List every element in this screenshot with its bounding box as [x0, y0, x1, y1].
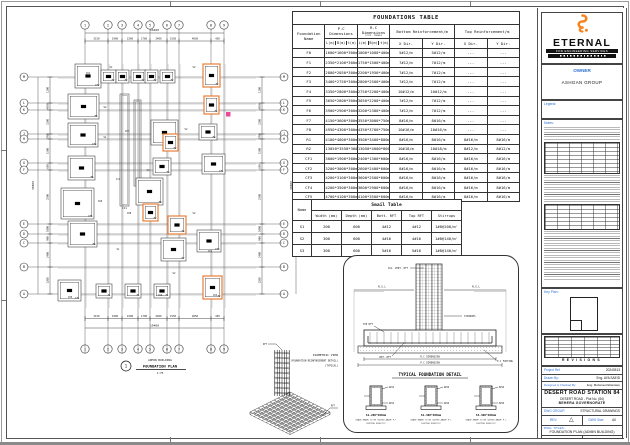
svg-text:2400: 2400	[155, 37, 162, 41]
owner-name: ASHGAN GROUP	[542, 80, 622, 85]
foundations-table-row: F12350*2100*300mm1750*1500*400mm7#12/m7#…	[293, 58, 520, 68]
foundations-table-row: CF34200*3100*300mm3600*2500*600mm8#16/m8…	[293, 173, 520, 183]
svg-text:S3: S3	[147, 169, 150, 172]
svg-text:A: A	[283, 292, 285, 296]
svg-text:1: 1	[84, 23, 86, 27]
svg-text:5#16: 5#16	[499, 386, 505, 389]
svg-text:RFT: RFT	[263, 343, 268, 346]
svg-text:S1: S1	[117, 248, 120, 251]
drawn-by-row: Drawn By: Eng. AYA SAEID	[542, 374, 622, 382]
fold-tick	[1, 300, 6, 301]
svg-text:TYPICAL FOUNDATION DETAIL: TYPICAL FOUNDATION DETAIL	[398, 372, 462, 377]
drawing-sheet: 112233445566778899MMLLKKJJHHGGFFEEDDCCBB…	[0, 0, 630, 445]
svg-text:B: B	[283, 265, 285, 269]
svg-text:2700: 2700	[46, 133, 50, 140]
svg-text:C03: C03	[213, 294, 218, 297]
svg-text:K: K	[283, 108, 285, 112]
drawn-by-value: Eng. AYA SAEID	[597, 375, 620, 382]
svg-text:5: 5	[149, 23, 151, 27]
svg-text:CF3: CF3	[215, 248, 220, 251]
col-pc-dimensions: P.C Dimensions	[325, 25, 357, 39]
smail-col-stirrups: Stirrups	[432, 211, 462, 221]
svg-text:H: H	[23, 137, 25, 141]
svg-text:4050: 4050	[192, 314, 199, 318]
svg-text:COL. VERT. RFT: COL. VERT. RFT	[388, 267, 409, 270]
notes-text	[544, 175, 620, 203]
rc-subcols: L(m)B(m)t(m)	[357, 38, 389, 48]
svg-text:450: 450	[215, 314, 220, 318]
svg-text:TOP RFT: TOP RFT	[363, 323, 374, 326]
svg-text:C11: C11	[116, 178, 121, 181]
title-block-panel: ETERNAL FOR ENGINEERING SERVICES OWNER A…	[537, 8, 627, 438]
svg-text:8: 8	[210, 23, 212, 27]
svg-text:FOOTING DIRECTLY: FOOTING DIRECTLY	[476, 423, 496, 425]
smail-col-top: Top RFT	[402, 211, 432, 221]
key-plan-label: Key Plan:	[542, 289, 622, 295]
dwg-size-value: A0	[612, 418, 616, 422]
svg-text:2: 2	[107, 23, 109, 27]
svg-text:30800: 30800	[31, 181, 35, 190]
foundations-table-row: F43350*2800*300mm2750*2200*400mm10#12/m1…	[293, 86, 520, 96]
svg-text:ISOMETRIC VIEW: ISOMETRIC VIEW	[313, 353, 338, 357]
svg-text:1200: 1200	[46, 87, 50, 94]
svg-text:BOT. RFT: BOT. RFT	[379, 356, 391, 359]
col-rc-dimensions: R.C Dimensions(col. base)	[357, 25, 389, 39]
svg-text:2700: 2700	[258, 133, 262, 140]
eternal-logo-icon	[575, 14, 590, 33]
svg-text:3: 3	[121, 23, 123, 27]
foundations-table-row: CF44200*3500*300mm3600*2900*600mm8#16/m8…	[293, 182, 520, 192]
project-ref-value: 20240513	[606, 367, 620, 374]
svg-text:2500: 2500	[258, 194, 262, 201]
svg-text:FOOTING DIRECTLY: FOOTING DIRECTLY	[421, 423, 441, 425]
svg-text:1500: 1500	[258, 148, 262, 155]
svg-text:R.C DIMENSION: R.C DIMENSION	[420, 355, 440, 359]
foundation-plan: 112233445566778899MMLLKKJJHHGGFFEEDDCCBB…	[8, 8, 340, 437]
svg-text:A: A	[23, 292, 25, 296]
revisions-box: REVISIONS	[541, 334, 623, 366]
foundations-table-row: F01600*1600*300mm1000*1000*400mm5#12/m5#…	[293, 48, 520, 58]
col-bottom-reinforcement: Bottom Reinforcement/m	[390, 25, 455, 39]
svg-text:L: L	[23, 101, 25, 105]
notes-text	[544, 127, 620, 141]
fold-tick	[320, 1, 321, 6]
foundations-table-row: F33400*2750*300mm2800*2500*400mm7#12/m7#…	[293, 77, 520, 87]
svg-text:2500: 2500	[46, 194, 50, 201]
svg-text:5#16: 5#16	[499, 402, 505, 405]
designed-by-value: Eng. Mohamed Eltantawy	[587, 382, 620, 389]
svg-text:ADMIN BUILDING: ADMIN BUILDING	[148, 358, 172, 362]
project-title: DESERT ROAD STATION 84	[542, 390, 622, 397]
smail-table: Name Smail Table Width (mm) Depth (mm) B…	[292, 199, 462, 257]
svg-text:M: M	[283, 75, 285, 79]
svg-text:CF1: CF1	[219, 170, 224, 173]
foundations-table-title: FOUNDATIONS TABLE	[293, 12, 520, 25]
svg-text:2400: 2400	[155, 314, 162, 318]
revisions-table	[544, 336, 620, 358]
svg-text:C: C	[283, 241, 285, 245]
svg-text:G: G	[283, 161, 285, 165]
foundations-table-row: R213050*3550*300mm13050*4000*800mm10#18/…	[293, 144, 520, 154]
foundations-table-row: R14100*4000*300mm3500*3400*800mm8#16/m8#…	[293, 134, 520, 144]
svg-text:GRADE BEAMS TO BE CASTED ABOVE: GRADE BEAMS TO BE CASTED ABOVE P.C	[466, 419, 508, 422]
svg-text:C08: C08	[127, 212, 132, 215]
svg-text:900: 900	[258, 236, 262, 241]
dwg-group-row: DWG GROUP: STRUCTURAL DRAWINGS	[542, 407, 622, 415]
svg-text:P.C DIMENSION: P.C DIMENSION	[420, 361, 440, 365]
svg-text:GRADE BEAMS TO BE CASTED ABOVE: GRADE BEAMS TO BE CASTED ABOVE P.C	[356, 419, 398, 422]
svg-text:S1-200*600mm: S1-200*600mm	[366, 413, 387, 417]
svg-text:C: C	[23, 241, 25, 245]
col-top-reinforcement: Top Reinforcement/m	[455, 25, 520, 39]
svg-text:S3-300*600mm: S3-300*600mm	[476, 413, 497, 417]
svg-text:S2: S2	[104, 106, 107, 109]
svg-text:N.G.L: N.G.L	[472, 285, 480, 289]
svg-text:CF2: CF2	[95, 84, 100, 87]
svg-text:3150: 3150	[93, 314, 100, 318]
svg-text:F: F	[23, 168, 25, 172]
svg-text:1200: 1200	[46, 277, 50, 284]
title-block: Project Ref 20240513 Drawn By: Eng. AYA …	[541, 366, 623, 439]
svg-text:S2: S2	[193, 212, 196, 215]
project-name-block: DESERT ROAD STATION 84 DESERT ROAD - Plo…	[542, 389, 622, 408]
svg-text:3200: 3200	[46, 119, 50, 126]
smail-col-depth: Depth (mm)	[342, 211, 372, 221]
project-ref-row: Project Ref 20240513	[542, 367, 622, 374]
svg-text:RFT: RFT	[331, 405, 336, 408]
company-tagline-arabic	[548, 54, 616, 58]
pc-subcols: L(m)B(m)t(m)	[325, 38, 357, 48]
svg-text:S2: S2	[185, 128, 188, 131]
owner-box: OWNER ASHGAN GROUP	[541, 64, 623, 100]
dwg-group-value: STRUCTURAL DRAWINGS	[580, 408, 620, 415]
svg-text:K: K	[23, 108, 25, 112]
svg-text:4#12: 4#12	[389, 402, 395, 405]
svg-text:STIRRUPS: STIRRUPS	[464, 315, 476, 318]
svg-text:3150: 3150	[93, 37, 100, 41]
svg-text:9: 9	[223, 23, 225, 27]
notes-text	[544, 231, 620, 281]
company-tagline: FOR ENGINEERING SERVICES	[546, 49, 618, 54]
scale-value: AS SHOWN	[601, 438, 618, 439]
drawing-no-value: ST-00	[570, 438, 579, 439]
revision-triangle-icon: △	[569, 417, 574, 423]
notes-table-1	[544, 142, 620, 174]
svg-text:650: 650	[258, 164, 262, 169]
svg-text:H: H	[283, 137, 285, 141]
owner-label: OWNER	[542, 68, 622, 73]
foundations-table: FOUNDATIONS TABLE Foundation Name P.C Di…	[292, 11, 520, 202]
col-bottom-x: X Dir.	[390, 38, 422, 48]
svg-text:E: E	[283, 222, 285, 226]
svg-text:1000: 1000	[258, 226, 262, 233]
svg-text:B: B	[23, 265, 25, 269]
typical-foundation-detail-box: N.G.LN.G.LCOL. VERT. RFTSTIRRUPSTOP RFTB…	[343, 255, 519, 433]
smail-col-name: Name	[293, 200, 312, 221]
notes-label: Notes:	[542, 120, 622, 126]
svg-text:P.C FOOTING: P.C FOOTING	[497, 360, 513, 363]
svg-text:1900: 1900	[112, 314, 119, 318]
svg-text:CF5: CF5	[88, 215, 93, 218]
foundations-table-row: F84950*4300*300mm4350*3700*750mm10#16/m1…	[293, 125, 520, 135]
svg-text:6: 6	[166, 23, 168, 27]
svg-text:E: E	[23, 222, 25, 226]
revisions-footer: REVISIONS	[542, 358, 622, 363]
designed-by-row: Designed & Checked By: Eng. Mohamed Elta…	[542, 381, 622, 389]
smail-table-row: S12006004#124#121#8@200/m'	[293, 221, 462, 233]
notes-table-2	[544, 204, 620, 230]
svg-text:C06: C06	[98, 200, 103, 203]
svg-text:4: 4	[137, 23, 139, 27]
svg-text:19400: 19400	[150, 323, 159, 327]
legend-box: Legend:	[541, 100, 623, 119]
svg-text:N.G.L: N.G.L	[378, 285, 386, 289]
svg-text:1:75: 1:75	[157, 371, 164, 375]
svg-text:C07: C07	[125, 130, 130, 133]
svg-text:1500: 1500	[46, 148, 50, 155]
dwg-title-row: DWG. TITLES: FOUNDATION PLAN (ADMIN BUIL…	[542, 425, 622, 435]
svg-text:1700: 1700	[141, 37, 148, 41]
foundations-table-row: CF13000*1900*300mm2400*1300*600mm8#16/m8…	[293, 154, 520, 164]
col-foundation-name: Foundation Name	[293, 25, 325, 49]
svg-text:C01: C01	[86, 72, 91, 75]
svg-text:4050: 4050	[192, 37, 199, 41]
svg-text:2200: 2200	[127, 37, 134, 41]
svg-text:F: F	[283, 168, 285, 172]
svg-text:4850: 4850	[258, 103, 262, 110]
typical-foundation-detail: N.G.LN.G.LCOL. VERT. RFTSTIRRUPSTOP RFTB…	[344, 256, 516, 430]
svg-text:1200: 1200	[258, 87, 262, 94]
svg-text:4#12: 4#12	[389, 386, 395, 389]
svg-text:1900: 1900	[112, 37, 119, 41]
svg-text:1200: 1200	[258, 277, 262, 284]
smail-table-title: Smail Table	[312, 200, 462, 211]
legend-label: Legend:	[542, 101, 622, 107]
svg-text:(TYPICAL): (TYPICAL)	[325, 364, 338, 367]
svg-text:4850: 4850	[46, 103, 50, 110]
svg-text:M: M	[23, 75, 25, 79]
svg-text:1700: 1700	[141, 314, 148, 318]
svg-text:C04: C04	[158, 294, 163, 297]
svg-text:1000: 1000	[46, 226, 50, 233]
svg-text:(FOUNDATION REINFORCEMENT DETA: (FOUNDATION REINFORCEMENT DETAIL)	[291, 359, 339, 362]
svg-text:D: D	[283, 232, 285, 236]
svg-text:C09: C09	[208, 250, 213, 253]
svg-text:2400: 2400	[258, 252, 262, 259]
fold-tick	[470, 1, 471, 6]
smail-col-bott: Bott. RFT	[372, 211, 402, 221]
svg-text:450: 450	[215, 37, 220, 41]
svg-text:D: D	[23, 232, 25, 236]
drawing-no-row: DRAWING NO: ST-00 SCALE: AS SHOWN	[542, 435, 622, 439]
company-logo-box: ETERNAL FOR ENGINEERING SERVICES	[541, 12, 623, 64]
foundations-table-row: F74150*3600*300mm3550*3000*750mm8#16/m8#…	[293, 115, 520, 125]
smail-col-width: Width (mm)	[312, 211, 342, 221]
svg-text:CF1: CF1	[75, 297, 80, 300]
foundations-table-row: F63900*2900*300mm3200*2300*400mm7#12/m7#…	[293, 106, 520, 116]
svg-text:FOUNDATION PLAN: FOUNDATION PLAN	[143, 364, 178, 369]
col-top-x: X Dir.	[455, 38, 487, 48]
smail-table-row: S23006004#164#161#8@140/m'	[293, 233, 462, 245]
svg-text:2400: 2400	[46, 252, 50, 259]
svg-text:FOOTING DIRECTLY: FOOTING DIRECTLY	[366, 423, 386, 425]
foundations-table-row: CF23200*3000*300mm2600*2400*600mm8#16/m8…	[293, 163, 520, 173]
svg-text:L: L	[283, 101, 285, 105]
svg-text:S2: S2	[193, 66, 196, 69]
svg-text:4#16: 4#16	[444, 386, 450, 389]
notes-box: Notes:	[541, 119, 623, 288]
svg-text:G: G	[23, 161, 25, 165]
foundations-table-row: F22800*2050*300mm2200*1950*400mm7#12/m7#…	[293, 67, 520, 77]
svg-text:3200: 3200	[258, 119, 262, 126]
svg-text:4#16: 4#16	[444, 402, 450, 405]
svg-text:CF4: CF4	[92, 143, 97, 146]
rev-size-row: REV: △ DWG Size: A0	[542, 415, 622, 425]
foundations-table-row: F53650*2800*300mm3050*2200*400mm7#12/m7#…	[293, 96, 520, 106]
svg-text:S2-300*600mm: S2-300*600mm	[421, 413, 442, 417]
col-bottom-y: Y Dir.	[422, 38, 454, 48]
svg-text:S2: S2	[173, 272, 176, 275]
fold-tick	[170, 1, 171, 6]
svg-text:2200: 2200	[127, 314, 134, 318]
company-name: ETERNAL	[542, 38, 622, 48]
svg-text:S1: S1	[104, 136, 107, 139]
svg-text:650: 650	[46, 164, 50, 169]
fold-tick	[1, 150, 6, 151]
svg-text:900: 900	[46, 236, 50, 241]
svg-text:S1: S1	[110, 66, 113, 69]
svg-text:1550: 1550	[170, 37, 177, 41]
col-top-y: Y Dir.	[487, 38, 519, 48]
svg-text:1550: 1550	[170, 314, 177, 318]
svg-text:C11: C11	[122, 206, 127, 210]
key-plan-sketch	[570, 297, 598, 331]
dwg-title-value: FOUNDATION PLAN (ADMIN BUILDING)	[542, 430, 622, 435]
svg-text:C05: C05	[68, 296, 73, 299]
key-plan-box: Key Plan:	[541, 288, 623, 334]
svg-text:GRADE BEAMS TO BE CASTED ABOVE: GRADE BEAMS TO BE CASTED ABOVE P.C	[411, 419, 453, 422]
svg-text:7: 7	[178, 23, 180, 27]
svg-text:19400: 19400	[150, 28, 159, 32]
project-governorate: BEHERA GOVERNORATE	[542, 401, 622, 406]
